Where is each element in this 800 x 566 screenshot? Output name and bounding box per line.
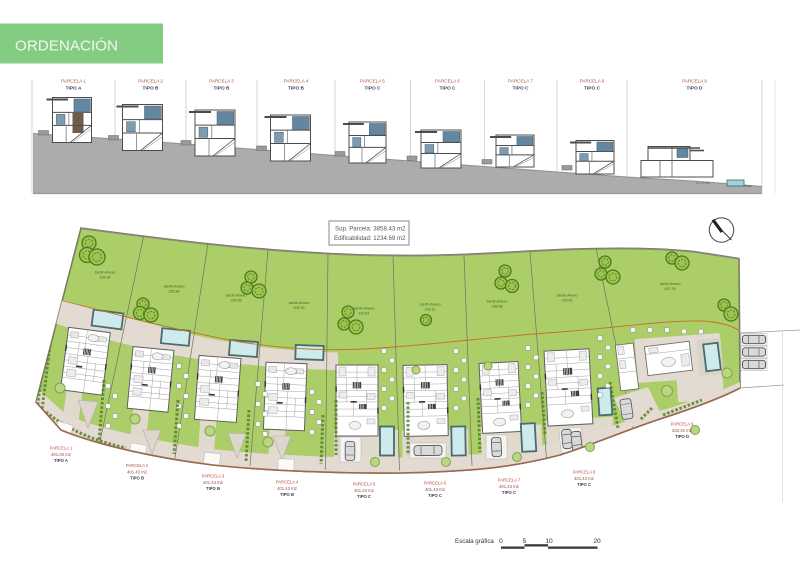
svg-text:PARCELA 4: PARCELA 4 xyxy=(276,480,299,485)
svg-text:Jardín Anexo: Jardín Anexo xyxy=(95,271,116,275)
svg-text:204.93: 204.93 xyxy=(294,306,305,310)
svg-text:TIPO B: TIPO B xyxy=(280,492,294,497)
svg-text:TIPO B: TIPO B xyxy=(214,86,231,92)
svg-text:5: 5 xyxy=(523,538,527,545)
svg-text:PARCELA 3: PARCELA 3 xyxy=(209,79,234,84)
svg-text:Jardín Anexo: Jardín Anexo xyxy=(487,300,508,304)
svg-text:TIPO B: TIPO B xyxy=(130,476,144,481)
svg-text:TIPO B: TIPO B xyxy=(206,486,220,491)
svg-text:Edificabilidad: 1234.69 m2: Edificabilidad: 1234.69 m2 xyxy=(334,235,406,242)
svg-text:401.43 m2: 401.43 m2 xyxy=(499,484,519,489)
svg-text:TIPO B: TIPO B xyxy=(288,86,305,92)
svg-text:TIPO A: TIPO A xyxy=(66,86,82,92)
svg-text:ORDENACIÓN: ORDENACIÓN xyxy=(15,37,118,54)
svg-text:TIPO C: TIPO C xyxy=(428,493,442,498)
svg-text:Jardín Anexo: Jardín Anexo xyxy=(354,307,375,311)
svg-text:226.34: 226.34 xyxy=(100,276,111,280)
svg-text:TIPO A: TIPO A xyxy=(54,458,68,463)
svg-text:PARCELA 5: PARCELA 5 xyxy=(360,79,385,84)
svg-text:PARCELA 1: PARCELA 1 xyxy=(50,446,73,451)
svg-text:20: 20 xyxy=(593,538,601,545)
svg-text:TIPO C: TIPO C xyxy=(502,490,516,495)
svg-text:PARCELA 2: PARCELA 2 xyxy=(138,79,163,84)
svg-text:PARCELA 8: PARCELA 8 xyxy=(573,470,596,475)
svg-text:401.43 m2: 401.43 m2 xyxy=(425,487,445,492)
svg-text:PARCELA 9: PARCELA 9 xyxy=(682,79,707,84)
svg-text:401.43 m2: 401.43 m2 xyxy=(277,486,297,491)
svg-text:401.00 m2: 401.00 m2 xyxy=(51,452,71,457)
svg-text:PARCELA 5: PARCELA 5 xyxy=(353,482,376,487)
svg-text:401.43 m2: 401.43 m2 xyxy=(574,476,594,481)
svg-text:PARCELA 4: PARCELA 4 xyxy=(284,79,309,84)
svg-text:Jardín Anexo: Jardín Anexo xyxy=(420,303,441,307)
svg-text:198.58: 198.58 xyxy=(492,305,503,309)
svg-text:PARCELA 8: PARCELA 8 xyxy=(580,79,605,84)
svg-text:TIPO D: TIPO D xyxy=(675,434,689,439)
svg-text:Jardín Anexo: Jardín Anexo xyxy=(557,294,578,298)
svg-text:205.84: 205.84 xyxy=(169,290,180,294)
svg-text:PARCELA 7: PARCELA 7 xyxy=(508,79,533,84)
svg-text:205.36: 205.36 xyxy=(231,299,242,303)
svg-text:TIPO C: TIPO C xyxy=(440,86,457,92)
svg-text:Sup. Parcela: 3858.43 m2: Sup. Parcela: 3858.43 m2 xyxy=(335,226,406,233)
svg-text:10: 10 xyxy=(545,538,553,545)
svg-text:0: 0 xyxy=(499,538,503,545)
svg-text:PARCELA 3: PARCELA 3 xyxy=(202,474,225,479)
svg-text:Jardín Anexo: Jardín Anexo xyxy=(226,294,247,298)
svg-text:TIPO C: TIPO C xyxy=(357,494,371,499)
svg-text:PARCELA 1: PARCELA 1 xyxy=(61,79,86,84)
svg-text:TIPO B: TIPO B xyxy=(143,86,160,92)
svg-text:Jardín Anexo: Jardín Anexo xyxy=(660,282,681,286)
svg-text:Escala gráfica: Escala gráfica xyxy=(455,538,494,545)
svg-text:TIPO C: TIPO C xyxy=(577,482,591,487)
svg-text:ref. ch.081: ref. ch.081 xyxy=(696,181,711,185)
svg-text:218.31: 218.31 xyxy=(425,308,436,312)
svg-text:401.43 m2: 401.43 m2 xyxy=(354,488,374,493)
svg-text:PARCELA 6: PARCELA 6 xyxy=(424,481,447,486)
svg-text:PARCELA 2: PARCELA 2 xyxy=(126,463,149,468)
svg-text:Jardín Anexo: Jardín Anexo xyxy=(164,285,185,289)
svg-text:210.61: 210.61 xyxy=(359,312,370,316)
svg-text:230.42: 230.42 xyxy=(562,299,573,303)
svg-text:TIPO C: TIPO C xyxy=(513,86,530,92)
svg-text:PARCELA 9: PARCELA 9 xyxy=(671,422,694,427)
svg-text:PARCELA 6: PARCELA 6 xyxy=(435,79,460,84)
svg-text:401.43 m2: 401.43 m2 xyxy=(127,470,147,475)
svg-text:533.40 m2: 533.40 m2 xyxy=(672,428,692,433)
svg-text:Jardín Anexo: Jardín Anexo xyxy=(289,301,310,305)
svg-text:TIPO D: TIPO D xyxy=(687,86,704,92)
svg-text:401.43 m2: 401.43 m2 xyxy=(203,480,223,485)
svg-text:437.76: 437.76 xyxy=(665,287,676,291)
svg-text:PARCELA 7: PARCELA 7 xyxy=(498,478,521,483)
svg-text:TIPO C: TIPO C xyxy=(365,86,382,92)
svg-text:TIPO C: TIPO C xyxy=(584,86,601,92)
